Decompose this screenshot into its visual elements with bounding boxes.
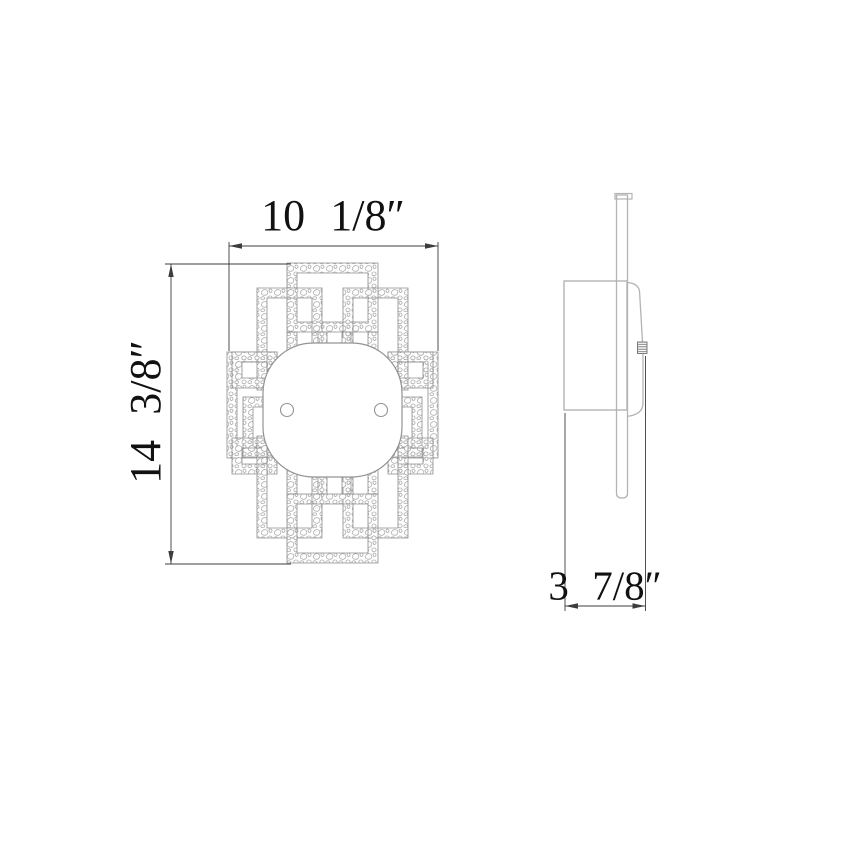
strip-top-flange (615, 194, 632, 200)
arrowhead (168, 551, 173, 564)
screw-circle-left (281, 404, 294, 417)
screw-circle-right (375, 404, 388, 417)
mounting-strip (617, 195, 628, 498)
diffuser-profile-upper (628, 283, 643, 342)
backplate (564, 281, 627, 410)
arrowhead (168, 264, 173, 277)
height-dimension-label: 14 3/8″ (124, 340, 168, 484)
diffuser-profile-lower (628, 354, 643, 417)
arrowhead (229, 243, 242, 248)
width-dimension-label: 10 1/8″ (261, 194, 405, 238)
depth-dimension-label: 3 7/8″ (548, 566, 661, 607)
drawing-canvas: 10 1/8″ 14 3/8″ 3 7/8″ (0, 0, 850, 850)
arrowhead (425, 243, 438, 248)
screw-knob (638, 342, 648, 354)
